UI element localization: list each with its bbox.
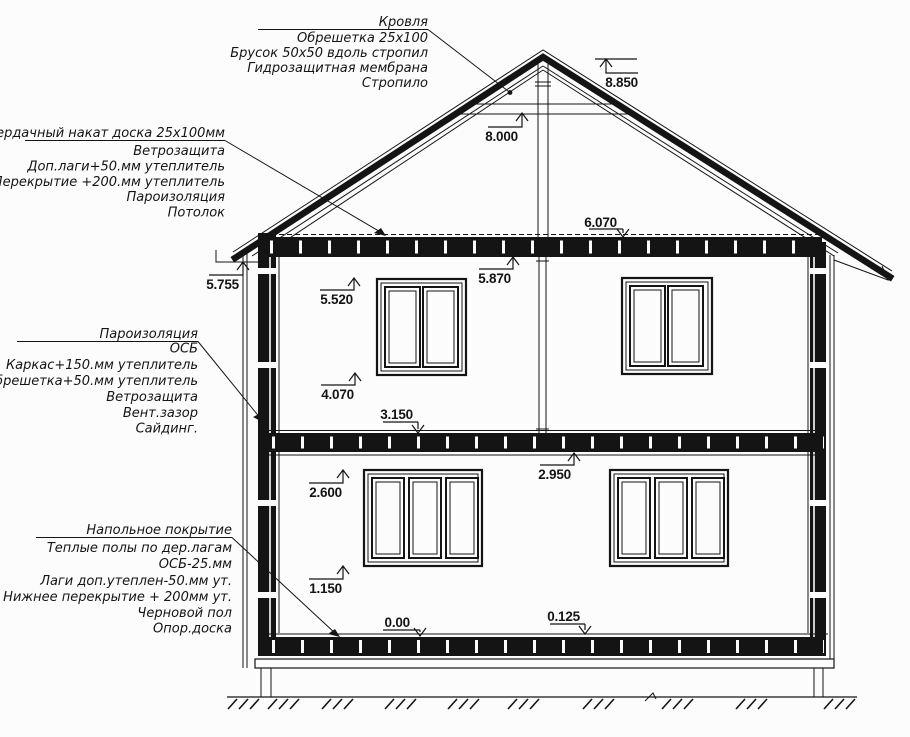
window-1f-left: [364, 470, 482, 566]
callout-line: Перекрытие +200.мм утеплитель: [0, 175, 225, 190]
attic-floor-band: [263, 235, 822, 258]
elevation-value: 0.00: [385, 615, 410, 630]
callout-line: Пароизоляция: [126, 190, 225, 205]
callout-line: Ветрозащита: [106, 390, 198, 405]
elevation-value: 4.070: [321, 387, 354, 402]
wall-gap: [810, 362, 826, 368]
callout-line: ОСБ-25.мм: [159, 557, 232, 572]
window-2f-right: [622, 278, 712, 374]
attic-floor-joists: [263, 237, 822, 257]
callout-line: Потолок: [168, 206, 226, 221]
wall-gap: [810, 268, 826, 274]
callout-line: Черновой пол: [137, 606, 232, 621]
callout-line: Обрешетка+50.мм утеплитель: [0, 374, 198, 389]
mid-floor-band: [263, 431, 826, 456]
wall-gap: [810, 500, 826, 506]
elevation-value: 8.850: [605, 75, 638, 90]
callout-line: Нижнее перекрытие + 200мм ут.: [3, 590, 232, 605]
wall-gap: [258, 268, 276, 274]
elevation-value: 5.755: [206, 277, 239, 292]
bottom-floor-band: [255, 634, 834, 668]
callout-line: Ветрозащита: [133, 144, 225, 159]
wall-gap: [258, 362, 276, 368]
callout-line: Кровля: [379, 15, 428, 30]
elevation-value: 5.870: [478, 271, 511, 286]
elevation-value: 3.150: [380, 407, 413, 422]
callout-line: Напольное покрытие: [86, 523, 232, 538]
elevation-value: 2.950: [538, 467, 571, 482]
elevation-value: 8.000: [485, 129, 518, 144]
elevation-value: 6.070: [584, 215, 617, 230]
section-drawing: 8.850 8.000 6.070 5.870 5.755 5.520 4.07…: [0, 0, 910, 737]
callout-line: Доп.лаги+50.мм утеплитель: [26, 160, 225, 175]
callout-line: Опор.доска: [153, 622, 232, 637]
callout-line: Лаги доп.утеплен-50.мм ут.: [39, 574, 232, 589]
callout-line: Вент.зазор: [123, 406, 198, 421]
elevation-value: 2.600: [309, 485, 342, 500]
window-2f-left: [377, 279, 466, 375]
elevation-value: 5.520: [320, 292, 353, 307]
callout-line: ОСБ: [170, 342, 198, 357]
callout-line: Чердачный накат доска 25х100мм: [0, 126, 225, 141]
bottom-floor-joists: [263, 637, 826, 656]
callout-line: Стропило: [362, 76, 428, 91]
rim-board: [255, 659, 834, 668]
elevation-value: 1.150: [309, 581, 342, 596]
wall-gap: [810, 592, 826, 598]
callout-line: Гидрозащитная мембрана: [247, 61, 428, 76]
mid-floor-joists: [263, 433, 826, 452]
callout-line: Пароизоляция: [99, 327, 198, 342]
window-1f-right: [610, 470, 728, 566]
callout-line: Теплые полы по дер.лагам: [47, 541, 232, 556]
wall-gap: [258, 500, 276, 506]
callout-line: Каркас+150.мм утеплитель: [6, 358, 198, 373]
elevation-value: 0.125: [547, 609, 580, 624]
callout-line: Брусок 50x50 вдоль стропил: [230, 46, 428, 61]
drawing-canvas: 8.850 8.000 6.070 5.870 5.755 5.520 4.07…: [0, 0, 910, 737]
wall-gap: [258, 592, 276, 598]
leader-dot: [508, 90, 513, 95]
callout-line: Обрешетка 25x100: [297, 31, 428, 46]
callout-line: Сайдинг.: [136, 422, 198, 437]
